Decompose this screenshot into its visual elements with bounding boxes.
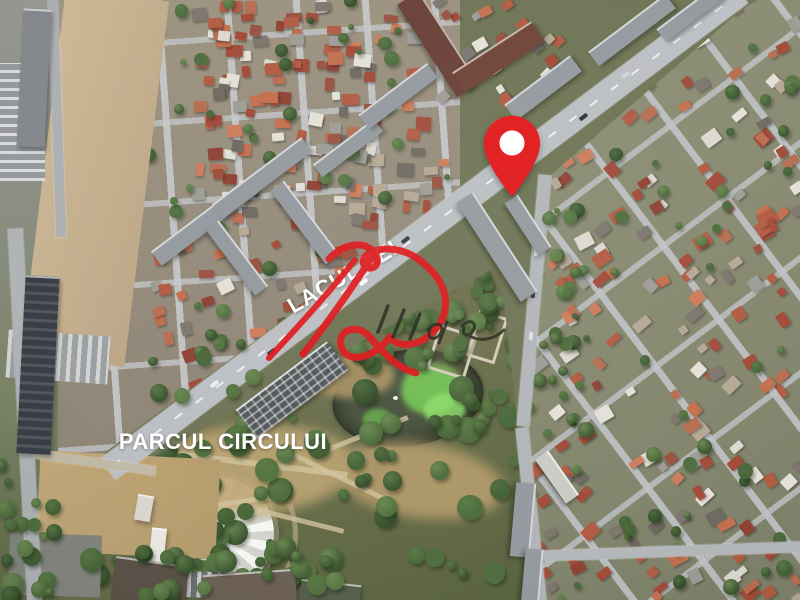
tree (326, 572, 344, 590)
tree (652, 160, 659, 167)
tree (422, 348, 434, 360)
house-roof (158, 283, 172, 296)
tree (679, 410, 687, 418)
house-roof (731, 108, 748, 124)
house-roof (383, 15, 397, 24)
tree (722, 201, 732, 211)
lake-speck (393, 396, 398, 400)
house-roof (779, 473, 797, 491)
house-roof (477, 90, 497, 108)
house-roof (346, 324, 360, 339)
tree (169, 205, 183, 219)
tree (453, 310, 463, 320)
park-label-parcul-circului: PARCUL CIRCULUI (119, 429, 327, 455)
house-roof (693, 76, 711, 93)
tree (492, 389, 507, 404)
house-roof (327, 25, 342, 33)
tree (468, 312, 485, 329)
tree (175, 4, 188, 17)
house-roof (635, 225, 652, 241)
house-roof (678, 324, 689, 335)
house-roof (315, 2, 331, 12)
house-roof (775, 40, 790, 55)
house-roof (719, 270, 733, 286)
house-roof (603, 161, 621, 179)
house-roof (790, 204, 800, 219)
tree (738, 463, 754, 479)
house-roof (791, 461, 800, 473)
house-roof (296, 183, 306, 192)
tree (45, 588, 53, 596)
tree (610, 268, 618, 276)
house-roof (317, 61, 326, 70)
house-roof (721, 375, 742, 396)
house-roof (276, 278, 286, 289)
house-roof (625, 386, 637, 397)
tree (408, 547, 425, 564)
tree (539, 341, 548, 350)
tree (160, 550, 175, 565)
house-roof (217, 30, 230, 42)
tree (45, 499, 61, 515)
tree (394, 27, 401, 34)
tree (543, 429, 552, 438)
tree (194, 302, 202, 310)
house-roof (614, 0, 636, 18)
house-roof (271, 240, 281, 250)
tree (751, 361, 763, 373)
tree (482, 298, 495, 311)
house-roof (685, 306, 704, 324)
house-roof (216, 277, 235, 295)
house-roof (680, 75, 694, 89)
house-roof (245, 108, 255, 117)
tree (425, 281, 436, 292)
tree (355, 475, 367, 487)
house-roof (152, 305, 166, 318)
tree (344, 0, 357, 7)
house-roof (199, 269, 214, 278)
house-roof (542, 527, 557, 540)
house-roof (213, 169, 223, 179)
tree (174, 104, 184, 114)
house-roof (461, 21, 477, 37)
tree (496, 296, 507, 307)
tree (554, 208, 560, 214)
tree (279, 58, 292, 71)
house-roof (766, 272, 778, 284)
house-roof (545, 582, 558, 595)
house-roof (419, 182, 432, 195)
tree (415, 334, 426, 345)
house-roof (284, 17, 300, 28)
tree (348, 24, 354, 30)
house-roof (548, 404, 566, 421)
house-roof (543, 12, 559, 28)
house-roof (272, 133, 285, 142)
house-roof (555, 439, 570, 453)
house-roof (593, 404, 614, 424)
tree (377, 344, 394, 361)
tree (550, 249, 563, 262)
tree (336, 344, 345, 353)
house-roof (339, 107, 349, 117)
house-roof (232, 139, 245, 152)
house-roof (163, 331, 174, 345)
house-roof (328, 51, 344, 65)
tree (557, 594, 565, 600)
tree (383, 471, 402, 490)
tree (716, 185, 728, 197)
house-roof (308, 111, 324, 127)
tree (392, 138, 404, 150)
tree (376, 496, 397, 517)
house-roof (728, 66, 744, 81)
house-roof (789, 573, 800, 586)
house-roof (786, 15, 800, 34)
tree (548, 375, 558, 385)
tree (255, 458, 278, 481)
tree (275, 44, 288, 57)
house-roof (342, 94, 359, 106)
house-roof (671, 472, 685, 486)
house-roof (242, 207, 257, 216)
tree (764, 161, 772, 169)
house-roof (213, 87, 226, 100)
house-roof (728, 256, 743, 270)
house-roof (240, 14, 253, 22)
tree (723, 579, 739, 595)
tree (562, 288, 573, 299)
tree (453, 336, 468, 351)
house-roof (261, 92, 278, 103)
tree (640, 355, 651, 366)
house-roof (353, 53, 371, 68)
tree (778, 125, 789, 136)
house-roof (551, 0, 573, 21)
house-roof (467, 257, 481, 272)
tree (1, 554, 14, 567)
tree (443, 253, 464, 274)
house-roof (404, 191, 421, 202)
house-roof (762, 472, 778, 488)
tree (283, 107, 297, 121)
house-roof (364, 72, 377, 83)
house-roof (361, 221, 378, 229)
pin-hole (499, 130, 524, 155)
house-roof (204, 76, 214, 85)
house-roof (275, 21, 283, 32)
house-roof (631, 189, 644, 202)
tree (255, 557, 265, 567)
tree (462, 392, 478, 408)
house-roof (701, 127, 723, 149)
house-roof (238, 227, 249, 236)
tree (338, 33, 348, 43)
house-roof (596, 565, 613, 581)
house-roof (411, 148, 426, 156)
tree (80, 548, 104, 572)
tree (657, 185, 669, 197)
tree (28, 518, 42, 532)
house-roof (226, 124, 242, 138)
house-roof (632, 315, 652, 334)
house-roof (431, 177, 442, 188)
house-roof (691, 485, 705, 501)
tree (338, 489, 349, 500)
house-roof (201, 296, 215, 308)
house-roof (708, 338, 723, 353)
house-roof (196, 162, 205, 176)
tree (574, 582, 580, 588)
house-roof (573, 231, 595, 251)
house-roof (639, 105, 658, 123)
tree (17, 540, 34, 557)
house-roof (253, 35, 269, 46)
tree (760, 94, 772, 106)
tree (254, 486, 269, 501)
tree (417, 361, 428, 372)
house-roof (208, 18, 223, 29)
tree (368, 299, 390, 321)
house-roof (328, 134, 342, 144)
tree (307, 17, 314, 24)
house-roof (273, 76, 285, 84)
house-roof (774, 369, 790, 385)
house-roof (738, 519, 756, 537)
tree (572, 465, 581, 474)
tree (761, 567, 771, 577)
house-roof (440, 282, 451, 293)
tree (319, 324, 337, 342)
house-roof (767, 50, 778, 61)
house-roof (777, 286, 788, 297)
house-roof (223, 173, 237, 184)
house-roof (678, 99, 693, 113)
house-roof (729, 440, 744, 455)
tree (457, 568, 468, 579)
house-roof (670, 389, 681, 400)
tree (725, 85, 740, 100)
house-roof (439, 159, 449, 166)
tree (307, 575, 327, 595)
car (529, 332, 534, 340)
tree (213, 338, 224, 349)
house-roof (592, 380, 604, 392)
tree (430, 461, 449, 480)
house-roof (416, 116, 432, 131)
house-roof (245, 1, 257, 15)
tree (445, 279, 454, 288)
tree (726, 128, 734, 136)
tree (497, 11, 506, 20)
house-roof (307, 180, 321, 190)
house-roof (535, 10, 551, 24)
house-roof (688, 289, 706, 307)
house-roof (678, 254, 693, 269)
house-roof (746, 275, 765, 294)
house-roof (397, 163, 415, 177)
house-roof (790, 180, 800, 195)
tree (559, 391, 568, 400)
tree (216, 304, 231, 319)
house-roof (232, 101, 246, 112)
tree (511, 66, 523, 78)
tree (174, 388, 190, 404)
house-roof (707, 366, 725, 382)
house-roof (775, 383, 789, 399)
house-roof (774, 311, 790, 328)
tree (194, 53, 207, 66)
tree (572, 313, 579, 320)
house-roof (753, 243, 764, 254)
tree (483, 281, 494, 292)
tree (1, 586, 19, 600)
tree (623, 523, 636, 536)
tree (578, 422, 594, 438)
house-roof (406, 128, 420, 141)
house-roof (579, 521, 601, 542)
house-roof (424, 167, 438, 176)
house-roof (501, 0, 515, 11)
tree (359, 421, 383, 445)
house-roof (242, 65, 252, 77)
tree (570, 267, 581, 278)
tree (777, 346, 785, 354)
tree (748, 43, 757, 52)
tree (706, 263, 713, 270)
tree (378, 191, 392, 205)
house-roof (704, 275, 715, 286)
house-roof (621, 109, 639, 127)
tree (153, 583, 170, 600)
house-roof (588, 302, 602, 316)
house-roof (735, 566, 748, 579)
house-roof (191, 7, 207, 21)
tree (170, 197, 178, 205)
house-roof (628, 455, 644, 469)
house-roof (194, 100, 208, 112)
tree (648, 509, 662, 523)
house-roof (697, 343, 708, 354)
tree (186, 184, 193, 191)
tree (559, 337, 573, 351)
pin-body (484, 116, 540, 197)
tree (444, 174, 450, 180)
tree (675, 222, 682, 229)
tree (261, 568, 274, 581)
tree (583, 335, 590, 342)
tree (150, 384, 168, 402)
tree (180, 59, 186, 65)
house-roof (449, 266, 467, 285)
house-roof (180, 321, 193, 336)
house-roof (536, 494, 552, 509)
house-roof (175, 290, 187, 302)
house-roof (791, 592, 800, 600)
tree (671, 526, 682, 537)
tree (333, 320, 347, 334)
tree (402, 310, 416, 324)
tree (504, 335, 521, 352)
tree (384, 51, 399, 66)
house-roof (402, 201, 410, 212)
tree (697, 439, 713, 455)
tree (425, 549, 443, 567)
tree (563, 210, 577, 224)
tree (609, 148, 623, 162)
house-roof (324, 77, 334, 90)
tree (262, 261, 277, 276)
tree (393, 279, 408, 294)
tree (490, 479, 511, 500)
house-roof (575, 130, 589, 145)
house-roof (235, 31, 248, 41)
tree (383, 314, 404, 335)
tree (457, 495, 483, 521)
tree (483, 562, 505, 584)
house-roof (731, 306, 748, 323)
tree (0, 500, 15, 518)
tree (558, 366, 568, 376)
house-roof (697, 162, 710, 174)
tree (356, 325, 369, 338)
tree (684, 512, 691, 519)
house-roof (289, 34, 305, 45)
house-roof (250, 25, 262, 38)
house-roof (733, 188, 746, 201)
tree (785, 84, 796, 95)
tree (245, 369, 261, 385)
tree (226, 384, 240, 398)
tree (249, 133, 259, 143)
house-roof (576, 148, 595, 165)
tree (451, 415, 460, 424)
house-roof (502, 222, 518, 238)
house-roof (332, 92, 341, 101)
building-roof (203, 569, 297, 600)
tree (447, 561, 456, 570)
tree (473, 419, 487, 433)
house-roof (686, 401, 703, 418)
house-roof (207, 147, 223, 160)
house-roof (605, 331, 621, 347)
house-roof (646, 566, 660, 580)
house-roof (334, 195, 347, 203)
tree (378, 37, 391, 50)
tree (683, 457, 697, 471)
house-roof (192, 188, 206, 200)
house-roof (350, 68, 362, 78)
tree (615, 211, 627, 223)
house-roof (686, 567, 703, 585)
tree (673, 575, 687, 589)
house-roof (562, 157, 575, 169)
tree (776, 560, 792, 576)
house-roof (593, 220, 612, 238)
tree (532, 374, 546, 388)
tree (783, 167, 791, 175)
house-roof (592, 356, 607, 371)
map-pin-icon[interactable] (479, 114, 545, 200)
satellite-map[interactable]: LACUL TEIPARCUL CIRCULUI (0, 0, 800, 600)
tree (4, 478, 12, 486)
tree (214, 550, 237, 573)
house-roof (758, 376, 776, 394)
house-roof (761, 584, 777, 600)
